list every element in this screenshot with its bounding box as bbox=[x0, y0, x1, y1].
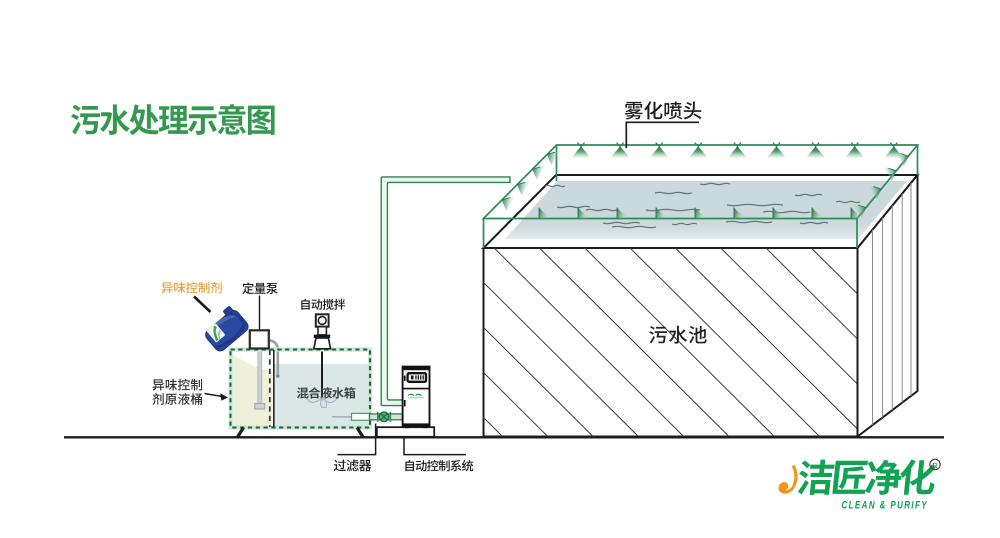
svg-text:R: R bbox=[932, 461, 938, 470]
svg-text:CLEAN & PURIFY: CLEAN & PURIFY bbox=[842, 500, 929, 512]
